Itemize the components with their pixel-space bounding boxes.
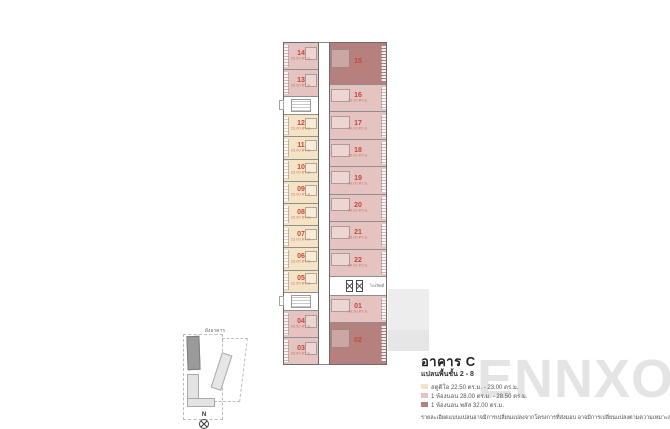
unit-16: 1628.00 ตร.ม.	[330, 85, 386, 112]
unit-area: 28.00 ตร.ม.	[348, 209, 368, 213]
disclaimer-text: รายละเอียดแบบแปลนอาจมีการเปลี่ยนแปลงจากโ…	[421, 414, 668, 422]
unit-15: 1532.00 ตร.ม.	[330, 43, 386, 85]
unit-area: 22.50 ตร.ม.	[291, 282, 311, 286]
unit-10: 1023.00 ตร.ม.	[284, 160, 318, 182]
unit-area: 32.00 ตร.ม.	[348, 344, 368, 348]
right-unit-stack: 1532.00 ตร.ม.1628.00 ตร.ม.1728.00 ตร.ม.1…	[329, 42, 387, 365]
unit-04: 0428.50 ตร.ม.	[284, 311, 318, 338]
compass-north-label: N	[197, 412, 211, 418]
floor-subtitle: แปลนพื้นชั้น 2 - 8	[421, 370, 527, 379]
unit-21: 2128.00 ตร.ม.	[330, 222, 386, 249]
unit-area: 28.00 ตร.ม.	[348, 154, 368, 158]
title-block: อาคาร C แปลนพื้นชั้น 2 - 8 สตูดิโอ 22.50…	[421, 355, 527, 409]
unit-area: 28.00 ตร.ม.	[348, 182, 368, 186]
page: 1428.50 ตร.ม.1328.50 ตร.ม.1223.00 ตร.ม.1…	[0, 0, 670, 429]
corridor	[319, 42, 329, 365]
unit-13: 1328.50 ตร.ม.	[284, 70, 318, 97]
unit-06: 0623.00 ตร.ม.	[284, 248, 318, 270]
unit-area: 28.50 ตร.ม.	[291, 57, 311, 61]
unit-area: 28.00 ตร.ม.	[348, 99, 368, 103]
unit-area: 32.00 ตร.ม.	[348, 65, 368, 69]
unit-22: 2228.00 ตร.ม.	[330, 250, 386, 277]
unit-area: 23.00 ตร.ม.	[291, 260, 311, 264]
compass-icon	[199, 419, 209, 429]
unit-area: 23.00 ตร.ม.	[291, 171, 311, 175]
unit-08: 0823.00 ตร.ม.	[284, 204, 318, 226]
unit-14: 1428.50 ตร.ม.	[284, 43, 318, 70]
stair-core	[284, 293, 318, 311]
site-building-l-horizontal	[187, 398, 215, 407]
unit-area: 28.50 ตร.ม.	[291, 84, 311, 88]
unit-area: 28.50 ตร.ม.	[291, 325, 311, 329]
compass: N	[197, 412, 211, 429]
unit-20: 2028.00 ตร.ม.	[330, 195, 386, 222]
legend-row-one-bed-plus: 1 ห้องนอน พลัส 32.00 ตร.ม.	[421, 400, 527, 409]
unit-area: 28.50 ตร.ม.	[291, 352, 311, 356]
unit-17: 1728.00 ตร.ม.	[330, 112, 386, 139]
stairs-icon	[291, 99, 312, 112]
unit-area: 28.50 ตร.ม.	[348, 310, 368, 314]
unit-area: 23.00 ตร.ม.	[291, 149, 311, 153]
building-title: อาคาร C	[421, 355, 527, 369]
lift-lobby-label: โถงลิฟต์	[370, 283, 384, 289]
unit-12: 1223.00 ตร.ม.	[284, 115, 318, 137]
unit-19: 1928.00 ตร.ม.	[330, 167, 386, 194]
unit-area: 23.00 ตร.ม.	[291, 238, 311, 242]
terrace-area-lower	[388, 330, 429, 351]
unit-02: 0232.00 ตร.ม.	[330, 323, 386, 364]
unit-05: 0522.50 ตร.ม.	[284, 271, 318, 293]
building-c-floorplan: 1428.50 ตร.ม.1328.50 ตร.ม.1223.00 ตร.ม.1…	[283, 42, 387, 365]
elevator-icon	[356, 280, 363, 292]
lift-core: โถงลิฟต์	[330, 277, 386, 296]
stairs-icon	[291, 295, 312, 308]
legend: สตูดิโอ 22.50 ตร.ม. - 23.00 ตร.ม. 1 ห้อง…	[421, 382, 527, 409]
unit-11: 1123.00 ตร.ม.	[284, 137, 318, 159]
elevator-icon	[346, 280, 353, 292]
unit-09: 0923.00 ตร.ม.	[284, 182, 318, 204]
unit-area: 23.00 ตร.ม.	[291, 127, 311, 131]
site-map: ผังอาคาร N	[175, 326, 275, 428]
unit-18: 1828.00 ตร.ม.	[330, 140, 386, 167]
stair-landing	[279, 296, 284, 306]
legend-swatch-one-bed-plus	[421, 402, 428, 407]
left-unit-stack: 1428.50 ตร.ม.1328.50 ตร.ม.1223.00 ตร.ม.1…	[283, 42, 319, 365]
legend-label-one-bed-plus: 1 ห้องนอน พลัส 32.00 ตร.ม.	[431, 400, 504, 410]
unit-01: 0128.50 ตร.ม.	[330, 296, 386, 323]
legend-swatch-studio	[421, 384, 428, 389]
stair-landing	[279, 100, 284, 110]
unit-03: 0328.50 ตร.ม.	[284, 338, 318, 364]
unit-area: 28.00 ตร.ม.	[348, 236, 368, 240]
unit-07: 0723.00 ตร.ม.	[284, 226, 318, 248]
legend-swatch-one-bed	[421, 393, 428, 398]
unit-area: 23.00 ตร.ม.	[291, 216, 311, 220]
unit-area: 23.00 ตร.ม.	[291, 193, 311, 197]
site-building-c-highlight	[186, 336, 200, 370]
unit-area: 28.00 ตร.ม.	[348, 127, 368, 131]
unit-area: 28.00 ตร.ม.	[348, 264, 368, 268]
stair-core	[284, 97, 318, 115]
